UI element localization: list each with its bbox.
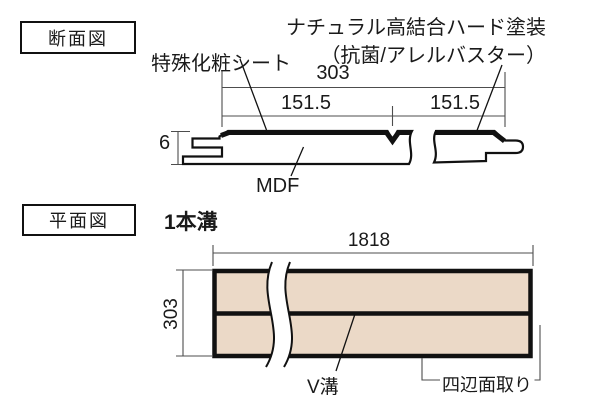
coating-label-line1: ナチュラル高結合ハード塗装 <box>286 11 546 40</box>
dimension-1818: 1818 <box>339 230 399 252</box>
dimension-151-left: 151.5 <box>272 92 340 115</box>
chamfer-bracket-right <box>535 325 541 380</box>
chamfer-bracket-left <box>422 358 440 380</box>
sheet-label: 特殊化粧シート <box>151 47 291 76</box>
dimension-thickness-6: 6 <box>159 132 170 155</box>
dimension-303-plan: 303 <box>161 284 183 344</box>
v-groove-label: V溝 <box>307 372 339 399</box>
plan-view-title: 1本溝 <box>164 206 218 236</box>
plan-view-tag-label: 平面図 <box>49 207 109 233</box>
board-profile-right <box>434 131 523 163</box>
dimension-151-right: 151.5 <box>421 92 489 115</box>
plan-view-drawing <box>176 245 540 380</box>
board-profile-left <box>183 131 412 164</box>
section-view-tag: 断面図 <box>20 21 136 54</box>
chamfer-label: 四辺面取り <box>442 371 532 397</box>
plan-view-tag: 平面図 <box>22 204 136 236</box>
diagram-page: 断面図 特殊化粧シート ナチュラル高結合ハード塗装 （抗菌/アレルバスター） 3… <box>0 0 600 400</box>
mdf-label: MDF <box>256 175 299 198</box>
dimension-303-section: 303 <box>308 62 358 85</box>
section-view-tag-label: 断面図 <box>48 25 108 51</box>
